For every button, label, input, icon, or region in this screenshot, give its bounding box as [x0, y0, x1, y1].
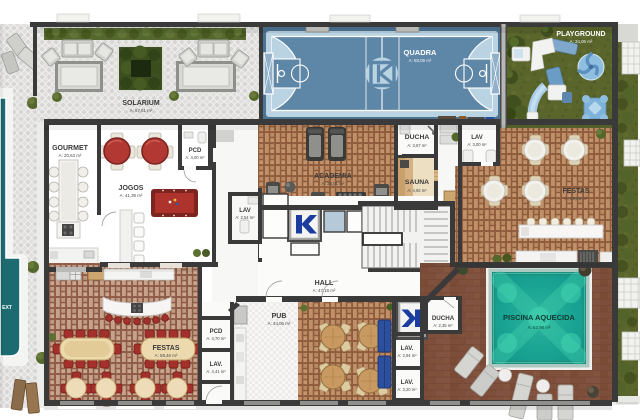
svg-text:HALL: HALL — [315, 280, 334, 287]
svg-text:GOURMET: GOURMET — [52, 145, 89, 152]
svg-text:A: 68,09 m²: A: 68,09 m² — [409, 58, 432, 63]
svg-text:A: 67,61 m²: A: 67,61 m² — [130, 108, 153, 113]
svg-text:LAV: LAV — [471, 135, 483, 141]
svg-text:PISCINA AQUECIDA: PISCINA AQUECIDA — [503, 313, 576, 322]
svg-text:PUB: PUB — [272, 313, 287, 320]
svg-text:LAV: LAV — [239, 208, 251, 214]
svg-text:FESTAS: FESTAS — [152, 345, 179, 352]
svg-text:PLAYGROUND: PLAYGROUND — [556, 31, 605, 38]
svg-text:A: 47,18 m²: A: 47,18 m² — [313, 288, 336, 293]
svg-text:A: 4,70 m²: A: 4,70 m² — [206, 336, 226, 341]
svg-text:A: 98,26 m²: A: 98,26 m² — [565, 196, 588, 201]
svg-text:A: 2,94 m²: A: 2,94 m² — [397, 353, 417, 358]
svg-text:A: 4,92 m²: A: 4,92 m² — [407, 188, 427, 193]
svg-text:A: 41,39 m²: A: 41,39 m² — [120, 193, 143, 198]
svg-text:LAV.: LAV. — [401, 346, 414, 352]
svg-text:LAV.: LAV. — [401, 380, 414, 386]
svg-text:PCD: PCD — [189, 148, 202, 154]
svg-text:A: 2,54 m²: A: 2,54 m² — [235, 215, 255, 220]
svg-text:JOGOS: JOGOS — [119, 185, 144, 192]
svg-text:SOLARIUM: SOLARIUM — [122, 100, 160, 107]
svg-text:DUCHA: DUCHA — [432, 315, 455, 322]
svg-text:A: 3,20 m²: A: 3,20 m² — [397, 387, 417, 392]
svg-text:A: 58,46 m²: A: 58,46 m² — [155, 353, 178, 358]
svg-text:FESTAS: FESTAS — [562, 188, 589, 195]
svg-text:SAUNA: SAUNA — [405, 179, 429, 186]
svg-text:A: 3,57 m²: A: 3,57 m² — [407, 143, 427, 148]
svg-text:A: 34,01 m²: A: 34,01 m² — [322, 181, 345, 186]
svg-text:ACADEMIA: ACADEMIA — [314, 173, 352, 180]
svg-text:A: 44,06 m²: A: 44,06 m² — [268, 321, 291, 326]
svg-text:A: 4,41 m²: A: 4,41 m² — [206, 369, 226, 374]
svg-text:A: 2,35 m²: A: 2,35 m² — [433, 323, 453, 328]
svg-text:A: 4,00 m²: A: 4,00 m² — [185, 155, 205, 160]
svg-text:LAV.: LAV. — [210, 362, 223, 368]
svg-text:A: 62,98 m²: A: 62,98 m² — [528, 325, 551, 330]
svg-text:EXT: EXT — [2, 305, 12, 311]
svg-text:A: 34,06 m²: A: 34,06 m² — [570, 39, 593, 44]
svg-text:A: 20,63 m²: A: 20,63 m² — [59, 153, 82, 158]
svg-text:DUCHA: DUCHA — [405, 134, 430, 141]
svg-text:A: 3,00 m²: A: 3,00 m² — [467, 142, 487, 147]
svg-text:QUADRA: QUADRA — [404, 48, 437, 57]
svg-text:PCD: PCD — [210, 329, 223, 335]
